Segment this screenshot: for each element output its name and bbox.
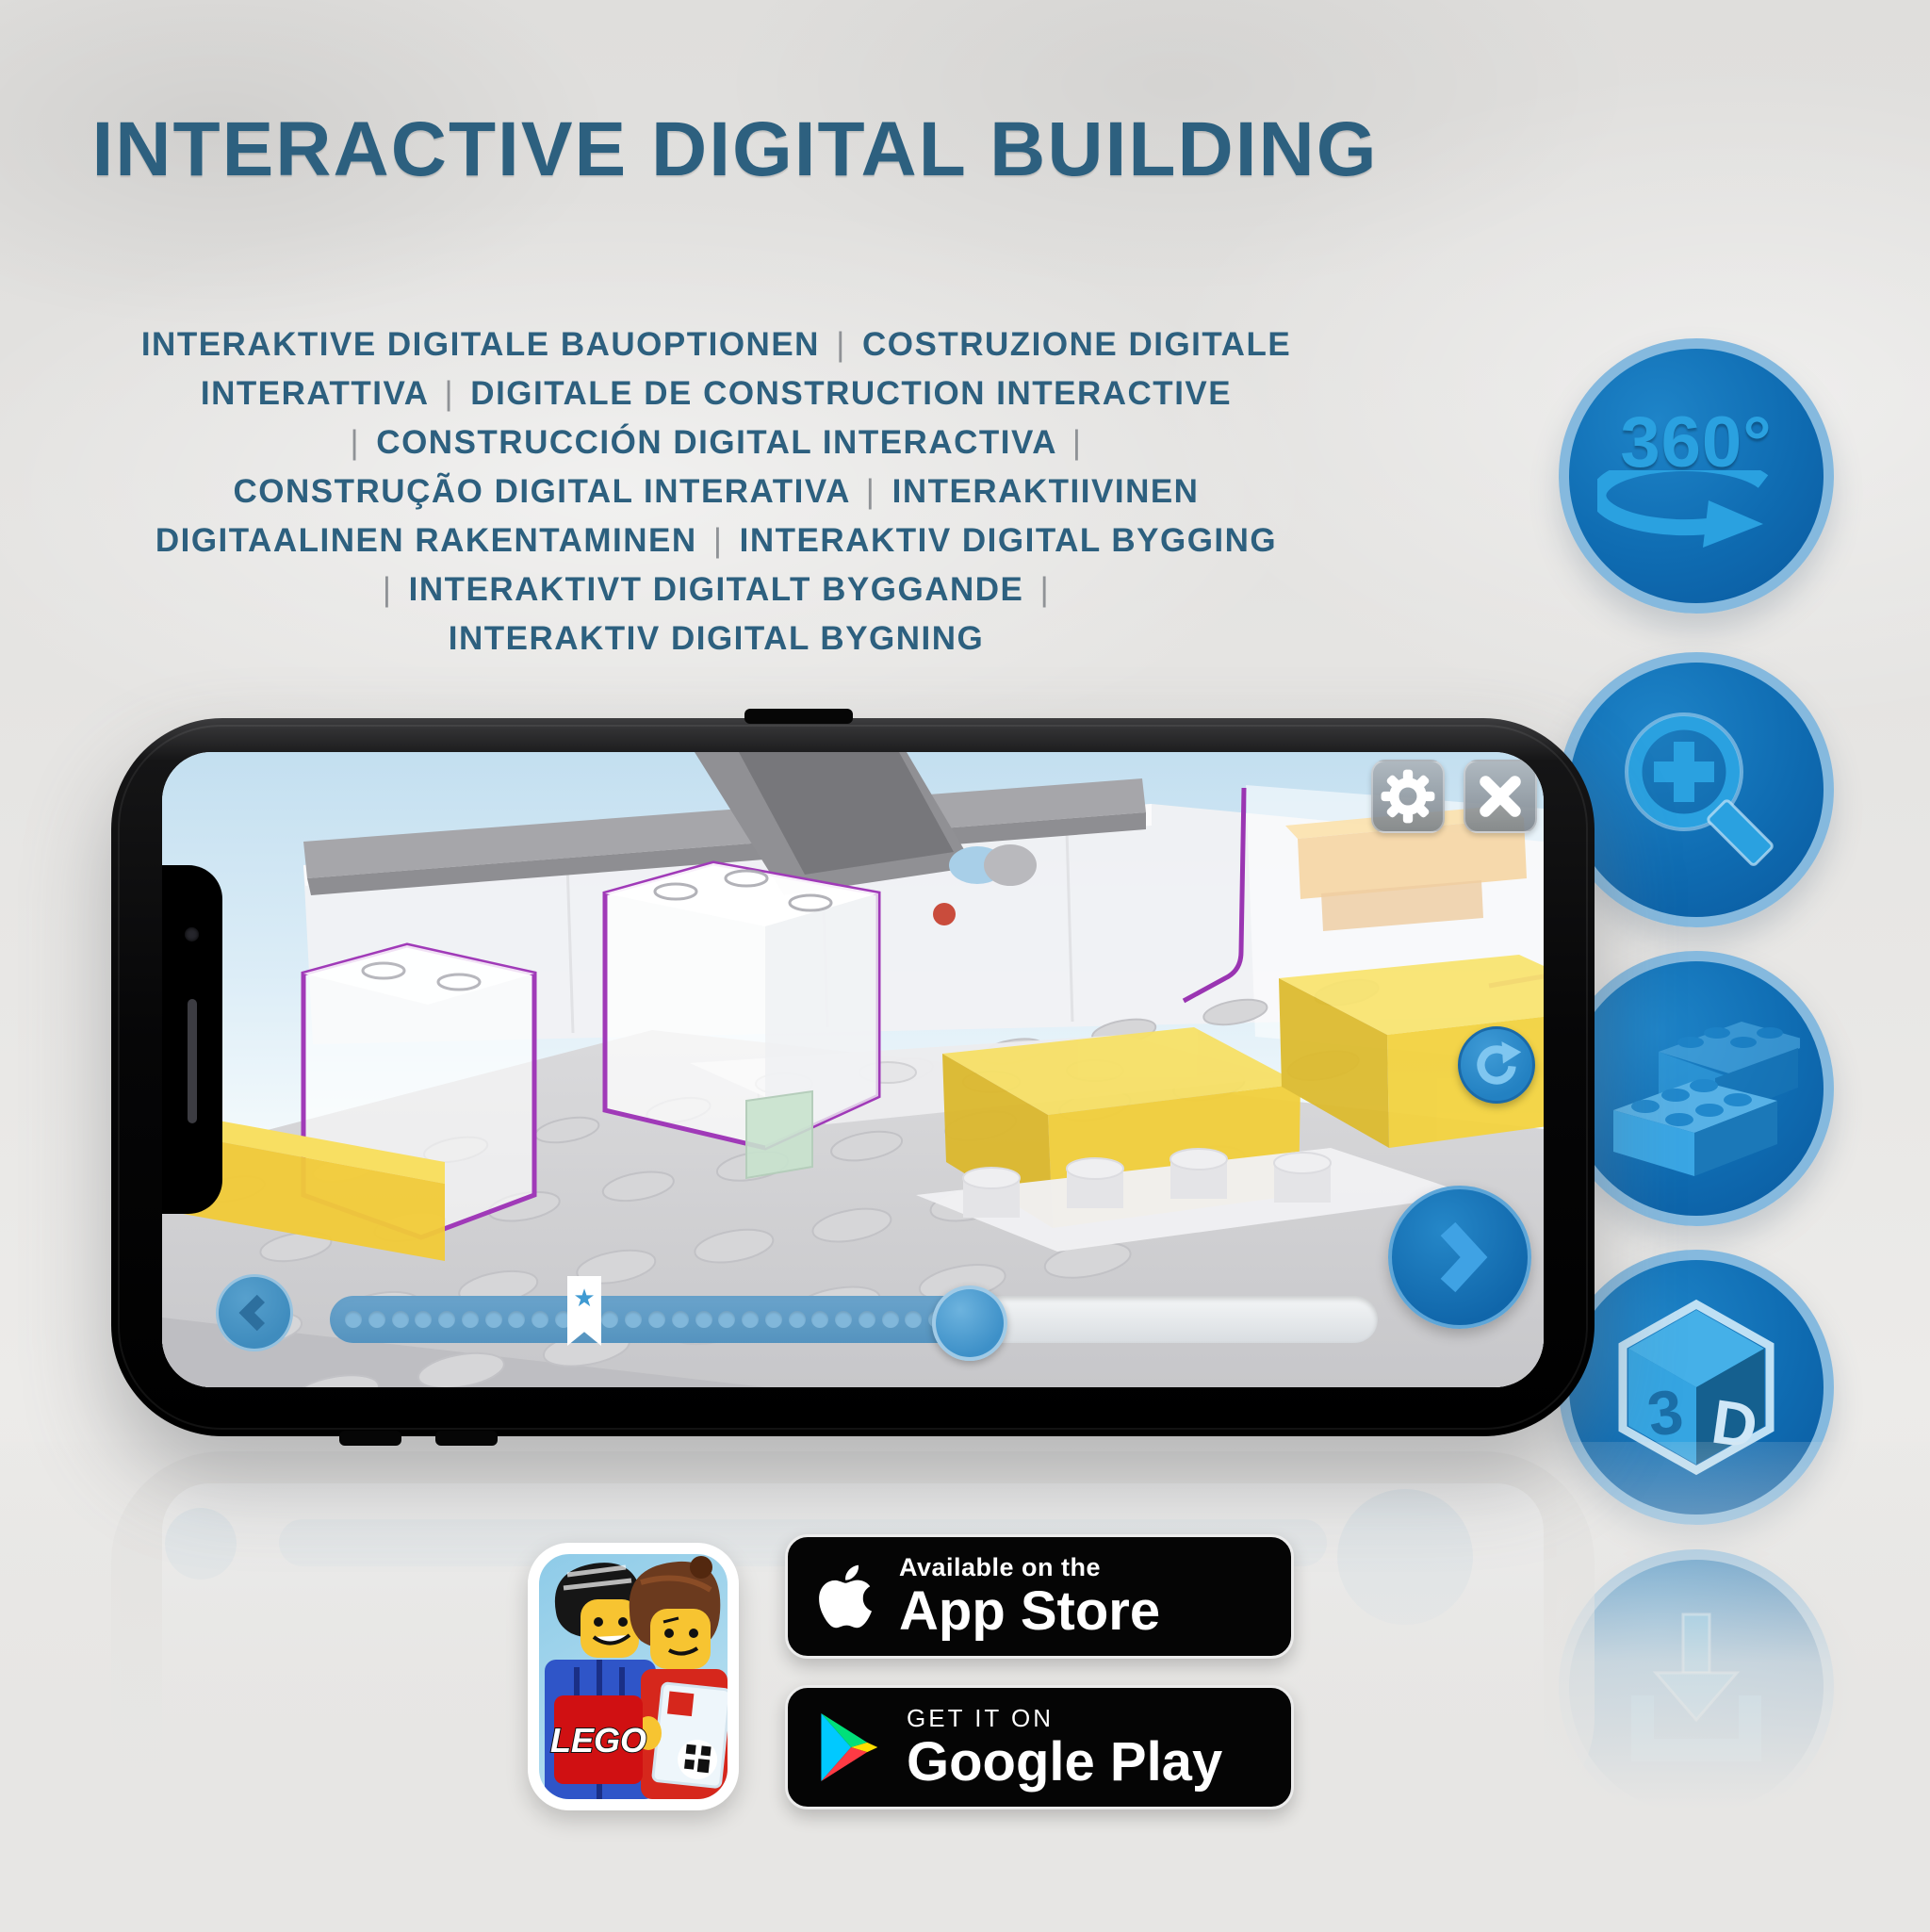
lego-bricks-icon (1593, 990, 1800, 1187)
app-screen: ★ (162, 752, 1544, 1387)
subtitle-line: DIGITAALINEN RAKENTAMINEN | INTERAKTIV D… (123, 516, 1310, 565)
progress-step-dot (789, 1311, 806, 1328)
rotate-360-icon: 360° (1559, 338, 1834, 614)
progress-step-dot (859, 1311, 875, 1328)
progress-step-dot (742, 1311, 759, 1328)
progress-step-dot (625, 1311, 642, 1328)
next-step-button[interactable] (1388, 1186, 1531, 1329)
google-play-icon (816, 1711, 882, 1784)
volume-up-button (339, 1431, 401, 1446)
progress-step-dot (392, 1311, 409, 1328)
google-play-badge[interactable]: GET IT ON Google Play (785, 1685, 1294, 1809)
lego-3d-build-scene[interactable] (162, 752, 1544, 1387)
power-button (744, 709, 853, 724)
subtitle-line: | CONSTRUCCIÓN DIGITAL INTERACTIVA | (123, 418, 1310, 467)
progress-step-dot (695, 1311, 712, 1328)
progress-step-dot (905, 1311, 922, 1328)
subtitle-line: INTERAKTIV DIGITAL BYGNING (123, 614, 1310, 663)
phone-device: ★ (111, 718, 1595, 1436)
google-play-name: Google Play (907, 1733, 1222, 1792)
progress-fill (330, 1296, 969, 1343)
progress-thumb[interactable] (932, 1285, 1007, 1361)
zoom-in-icon (1559, 652, 1834, 927)
lego-logo: LEGO (550, 1721, 646, 1760)
app-store-badge[interactable]: Available on the App Store (785, 1534, 1294, 1659)
chevron-right-icon (1422, 1220, 1497, 1295)
subtitle-line: | INTERAKTIVT DIGITALT BYGGANDE | (123, 565, 1310, 614)
settings-button[interactable] (1371, 760, 1445, 833)
magnifier-plus-icon (1607, 700, 1786, 879)
app-store-name: App Store (899, 1582, 1160, 1641)
progress-step-dot (811, 1311, 828, 1328)
apple-icon (816, 1561, 875, 1632)
app-store-tagline: Available on the (899, 1553, 1160, 1582)
progress-step-dot (508, 1311, 525, 1328)
rotate-arrow-icon (1597, 470, 1795, 551)
rotate-clockwise-icon (1469, 1038, 1524, 1092)
progress-step-dot (672, 1311, 689, 1328)
volume-down-button (435, 1431, 498, 1446)
multilingual-subtitle: INTERAKTIVE DIGITALE BAUOPTIONEN | COSTR… (123, 320, 1310, 663)
google-play-tagline: GET IT ON (907, 1704, 1222, 1733)
progress-step-dot (882, 1311, 899, 1328)
progress-step-dot (601, 1311, 618, 1328)
progress-step-dot (718, 1311, 735, 1328)
progress-step-dot (485, 1311, 502, 1328)
close-icon (1474, 770, 1527, 823)
previous-step-button[interactable] (216, 1274, 293, 1351)
earpiece-speaker (188, 999, 197, 1123)
progress-step-dot (462, 1311, 479, 1328)
rotate-view-button[interactable] (1458, 1026, 1535, 1104)
progress-step-dot (648, 1311, 665, 1328)
build-progress-slider[interactable] (330, 1296, 1378, 1343)
lego-app-icon[interactable]: LEGO (528, 1543, 739, 1810)
front-camera (185, 927, 199, 941)
progress-step-dot (765, 1311, 782, 1328)
subtitle-line: INTERATTIVA | DIGITALE DE CONSTRUCTION I… (123, 369, 1310, 418)
gear-icon (1379, 767, 1437, 826)
close-button[interactable] (1464, 760, 1537, 833)
page-title: INTERACTIVE DIGITAL BUILDING (0, 106, 1470, 194)
progress-step-dot (415, 1311, 432, 1328)
progress-step-dot (345, 1311, 362, 1328)
progress-step-dot (835, 1311, 852, 1328)
phone-notch (162, 865, 222, 1214)
building-bricks-icon (1559, 951, 1834, 1226)
subtitle-line: CONSTRUÇÃO DIGITAL INTERATIVA | INTERAKT… (123, 467, 1310, 516)
progress-step-dot (438, 1311, 455, 1328)
progress-step-dot (532, 1311, 548, 1328)
progress-step-dot (368, 1311, 385, 1328)
lego-minifigures-art: LEGO (539, 1554, 728, 1799)
chevron-left-icon (234, 1292, 275, 1334)
subtitle-line: INTERAKTIVE DIGITALE BAUOPTIONEN | COSTR… (123, 320, 1310, 369)
